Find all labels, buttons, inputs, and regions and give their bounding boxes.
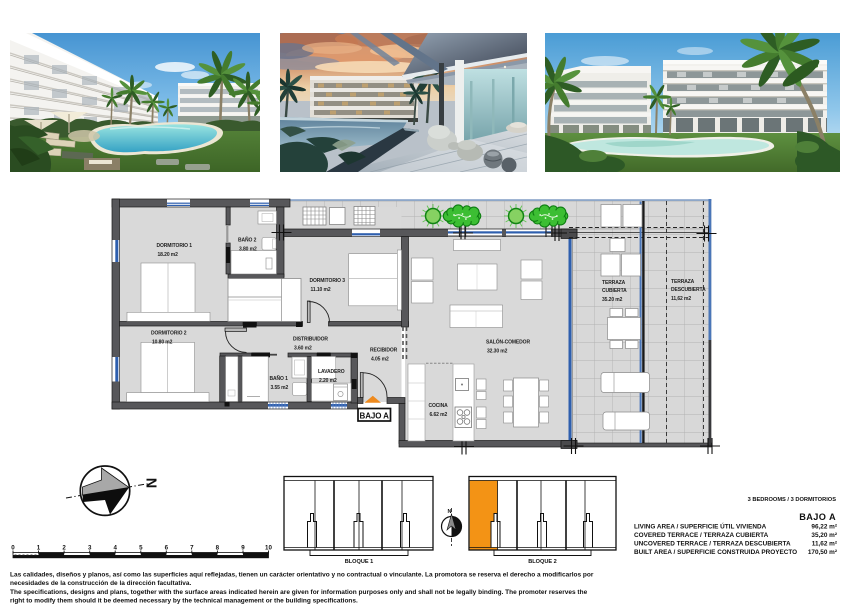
svg-text:DORMITORIO 3: DORMITORIO 3	[310, 278, 346, 284]
svg-text:11,62 m2: 11,62 m2	[671, 296, 691, 302]
svg-text:5: 5	[139, 545, 143, 552]
svg-text:LAVADERO: LAVADERO	[318, 369, 345, 375]
svg-text:1: 1	[37, 545, 41, 552]
svg-text:UNCOVERED TERRACE / TERRAZA DE: UNCOVERED TERRACE / TERRAZA DESCUBIERTA	[634, 541, 791, 548]
svg-text:35,20 m²: 35,20 m²	[811, 532, 837, 539]
svg-text:DESCUBIERTA: DESCUBIERTA	[671, 287, 706, 293]
svg-text:DORMITORIO 1: DORMITORIO 1	[157, 243, 193, 249]
svg-text:3.55 m2: 3.55 m2	[271, 385, 289, 391]
svg-text:32.30 m2: 32.30 m2	[487, 349, 508, 355]
svg-text:BAJO A: BAJO A	[360, 411, 390, 420]
svg-text:TERRAZA: TERRAZA	[602, 280, 626, 286]
svg-text:2.20 m2: 2.20 m2	[319, 378, 337, 384]
svg-text:DISTRIBUIDOR: DISTRIBUIDOR	[293, 337, 328, 343]
svg-text:8: 8	[216, 545, 220, 552]
svg-text:BLOQUE 2: BLOQUE 2	[528, 559, 557, 565]
svg-text:TERRAZA: TERRAZA	[671, 279, 695, 285]
svg-text:BLOQUE 1: BLOQUE 1	[345, 559, 374, 565]
svg-text:SALÓN-COMEDOR: SALÓN-COMEDOR	[486, 338, 530, 346]
svg-text:11.10 m2: 11.10 m2	[311, 287, 331, 293]
svg-text:necesidades de la construcción: necesidades de la construcción de la dir…	[10, 580, 192, 587]
svg-text:35.20 m2: 35.20 m2	[602, 297, 623, 303]
svg-text:96,22 m²: 96,22 m²	[811, 524, 837, 531]
svg-text:6.62 m2: 6.62 m2	[430, 412, 448, 418]
svg-text:The specifications, designs an: The specifications, designs and plans, t…	[10, 589, 588, 596]
svg-text:18.20 m2: 18.20 m2	[158, 252, 179, 258]
svg-text:10: 10	[265, 545, 272, 552]
svg-text:9: 9	[241, 545, 245, 552]
svg-text:BAJO A: BAJO A	[799, 512, 836, 522]
svg-text:3.80 m2: 3.80 m2	[239, 247, 257, 253]
svg-text:LIVING AREA / SUPERFICIE ÚTIL: LIVING AREA / SUPERFICIE ÚTIL VIVIENDA	[634, 522, 767, 531]
svg-text:10.80 m2: 10.80 m2	[152, 340, 173, 346]
svg-text:170,50 m²: 170,50 m²	[808, 549, 837, 556]
svg-text:COVERED TERRACE / TERRAZA CUBI: COVERED TERRACE / TERRAZA CUBIERTA	[634, 532, 769, 539]
svg-text:BAÑO 1: BAÑO 1	[270, 375, 289, 382]
svg-text:N: N	[143, 478, 159, 488]
svg-text:4.05 m2: 4.05 m2	[371, 357, 389, 363]
svg-text:N: N	[448, 509, 452, 515]
svg-text:COCINA: COCINA	[429, 403, 449, 409]
svg-text:BUILT AREA / SUPERFICIE CONSTR: BUILT AREA / SUPERFICIE CONSTRUIDA PROYE…	[634, 549, 797, 556]
svg-text:Las calidades, diseños y plano: Las calidades, diseños y planos, así com…	[10, 572, 594, 579]
svg-text:2: 2	[62, 545, 66, 552]
svg-text:0: 0	[11, 545, 15, 552]
svg-text:6: 6	[165, 545, 169, 552]
svg-text:DORMITORIO 2: DORMITORIO 2	[151, 331, 187, 337]
svg-text:BAÑO 2: BAÑO 2	[238, 237, 257, 244]
svg-text:3.60 m2: 3.60 m2	[294, 346, 312, 352]
svg-text:RECIBIDOR: RECIBIDOR	[370, 348, 398, 354]
svg-text:3: 3	[88, 545, 92, 552]
svg-text:3 BEDROOMS / 3 DORMITORIOS: 3 BEDROOMS / 3 DORMITORIOS	[748, 497, 837, 503]
svg-text:11,62 m²: 11,62 m²	[812, 541, 837, 548]
svg-text:7: 7	[190, 545, 194, 552]
svg-text:right to modify them should it: right to modify them should it be deemed…	[10, 598, 358, 605]
svg-text:CUBIERTA: CUBIERTA	[602, 288, 627, 294]
svg-text:4: 4	[113, 545, 117, 552]
